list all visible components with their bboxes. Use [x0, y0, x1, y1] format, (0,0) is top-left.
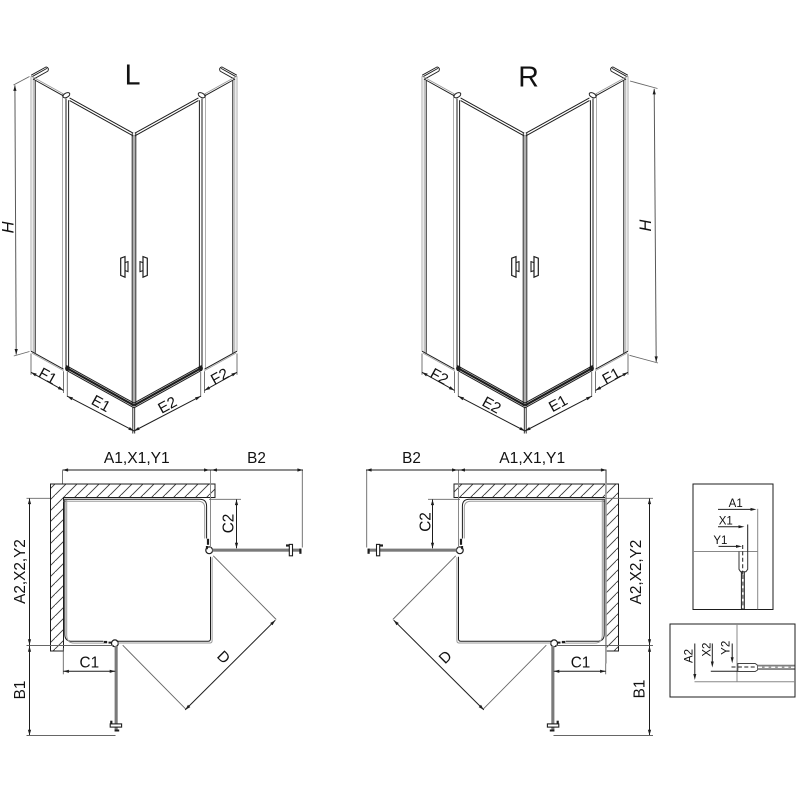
- svg-text:A1: A1: [729, 498, 743, 510]
- svg-text:B1: B1: [12, 681, 29, 700]
- svg-text:A1,X1,Y1: A1,X1,Y1: [499, 450, 565, 467]
- svg-text:C2: C2: [418, 512, 435, 532]
- svg-text:X1: X1: [719, 515, 733, 527]
- svg-text:C1: C1: [80, 655, 100, 672]
- svg-text:A2: A2: [683, 649, 695, 663]
- svg-text:H: H: [637, 219, 655, 231]
- svg-text:X2: X2: [701, 643, 713, 657]
- svg-text:H: H: [0, 221, 17, 233]
- svg-text:B2: B2: [402, 450, 421, 467]
- svg-text:A2,X2,Y2: A2,X2,Y2: [628, 540, 645, 605]
- svg-text:A2,X2,Y2: A2,X2,Y2: [12, 539, 29, 604]
- svg-text:C1: C1: [571, 655, 591, 672]
- svg-text:B2: B2: [247, 450, 266, 467]
- svg-text:B1: B1: [631, 680, 648, 699]
- svg-text:R: R: [518, 61, 539, 93]
- svg-text:Y1: Y1: [713, 535, 727, 547]
- svg-text:Y2: Y2: [721, 641, 733, 655]
- svg-text:A1,X1,Y1: A1,X1,Y1: [104, 450, 170, 467]
- svg-text:L: L: [125, 60, 141, 92]
- svg-text:C2: C2: [221, 514, 238, 534]
